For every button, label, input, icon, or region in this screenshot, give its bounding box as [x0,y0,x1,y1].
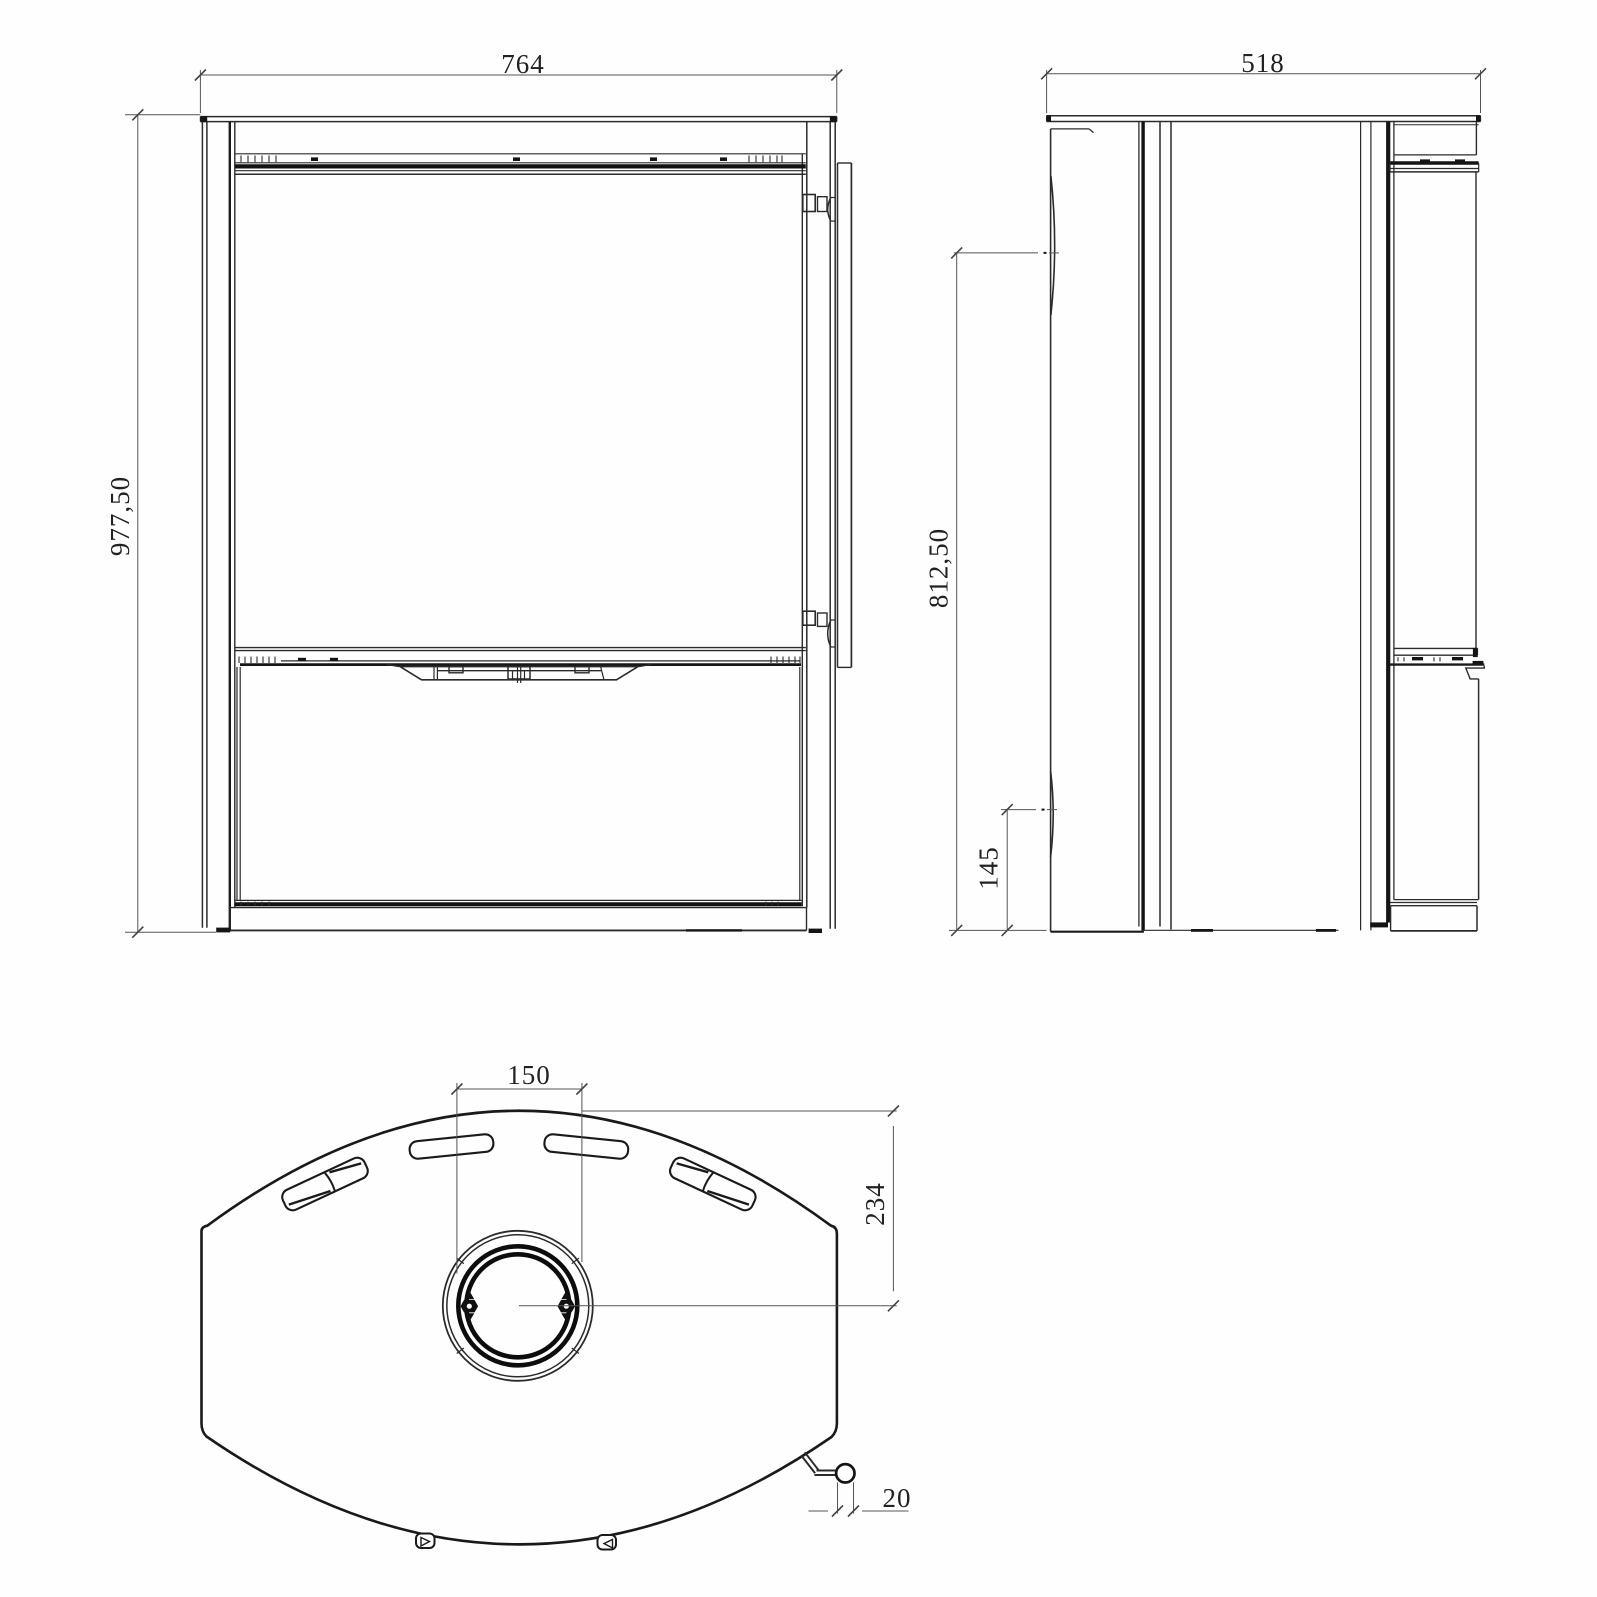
svg-text:20: 20 [883,1483,912,1513]
svg-text:812,50: 812,50 [924,528,954,608]
svg-text:518: 518 [1241,48,1285,78]
svg-text:150: 150 [507,1060,551,1090]
svg-text:145: 145 [974,846,1004,890]
svg-text:977,50: 977,50 [105,476,135,556]
svg-text:764: 764 [501,49,545,79]
svg-text:234: 234 [860,1182,890,1226]
